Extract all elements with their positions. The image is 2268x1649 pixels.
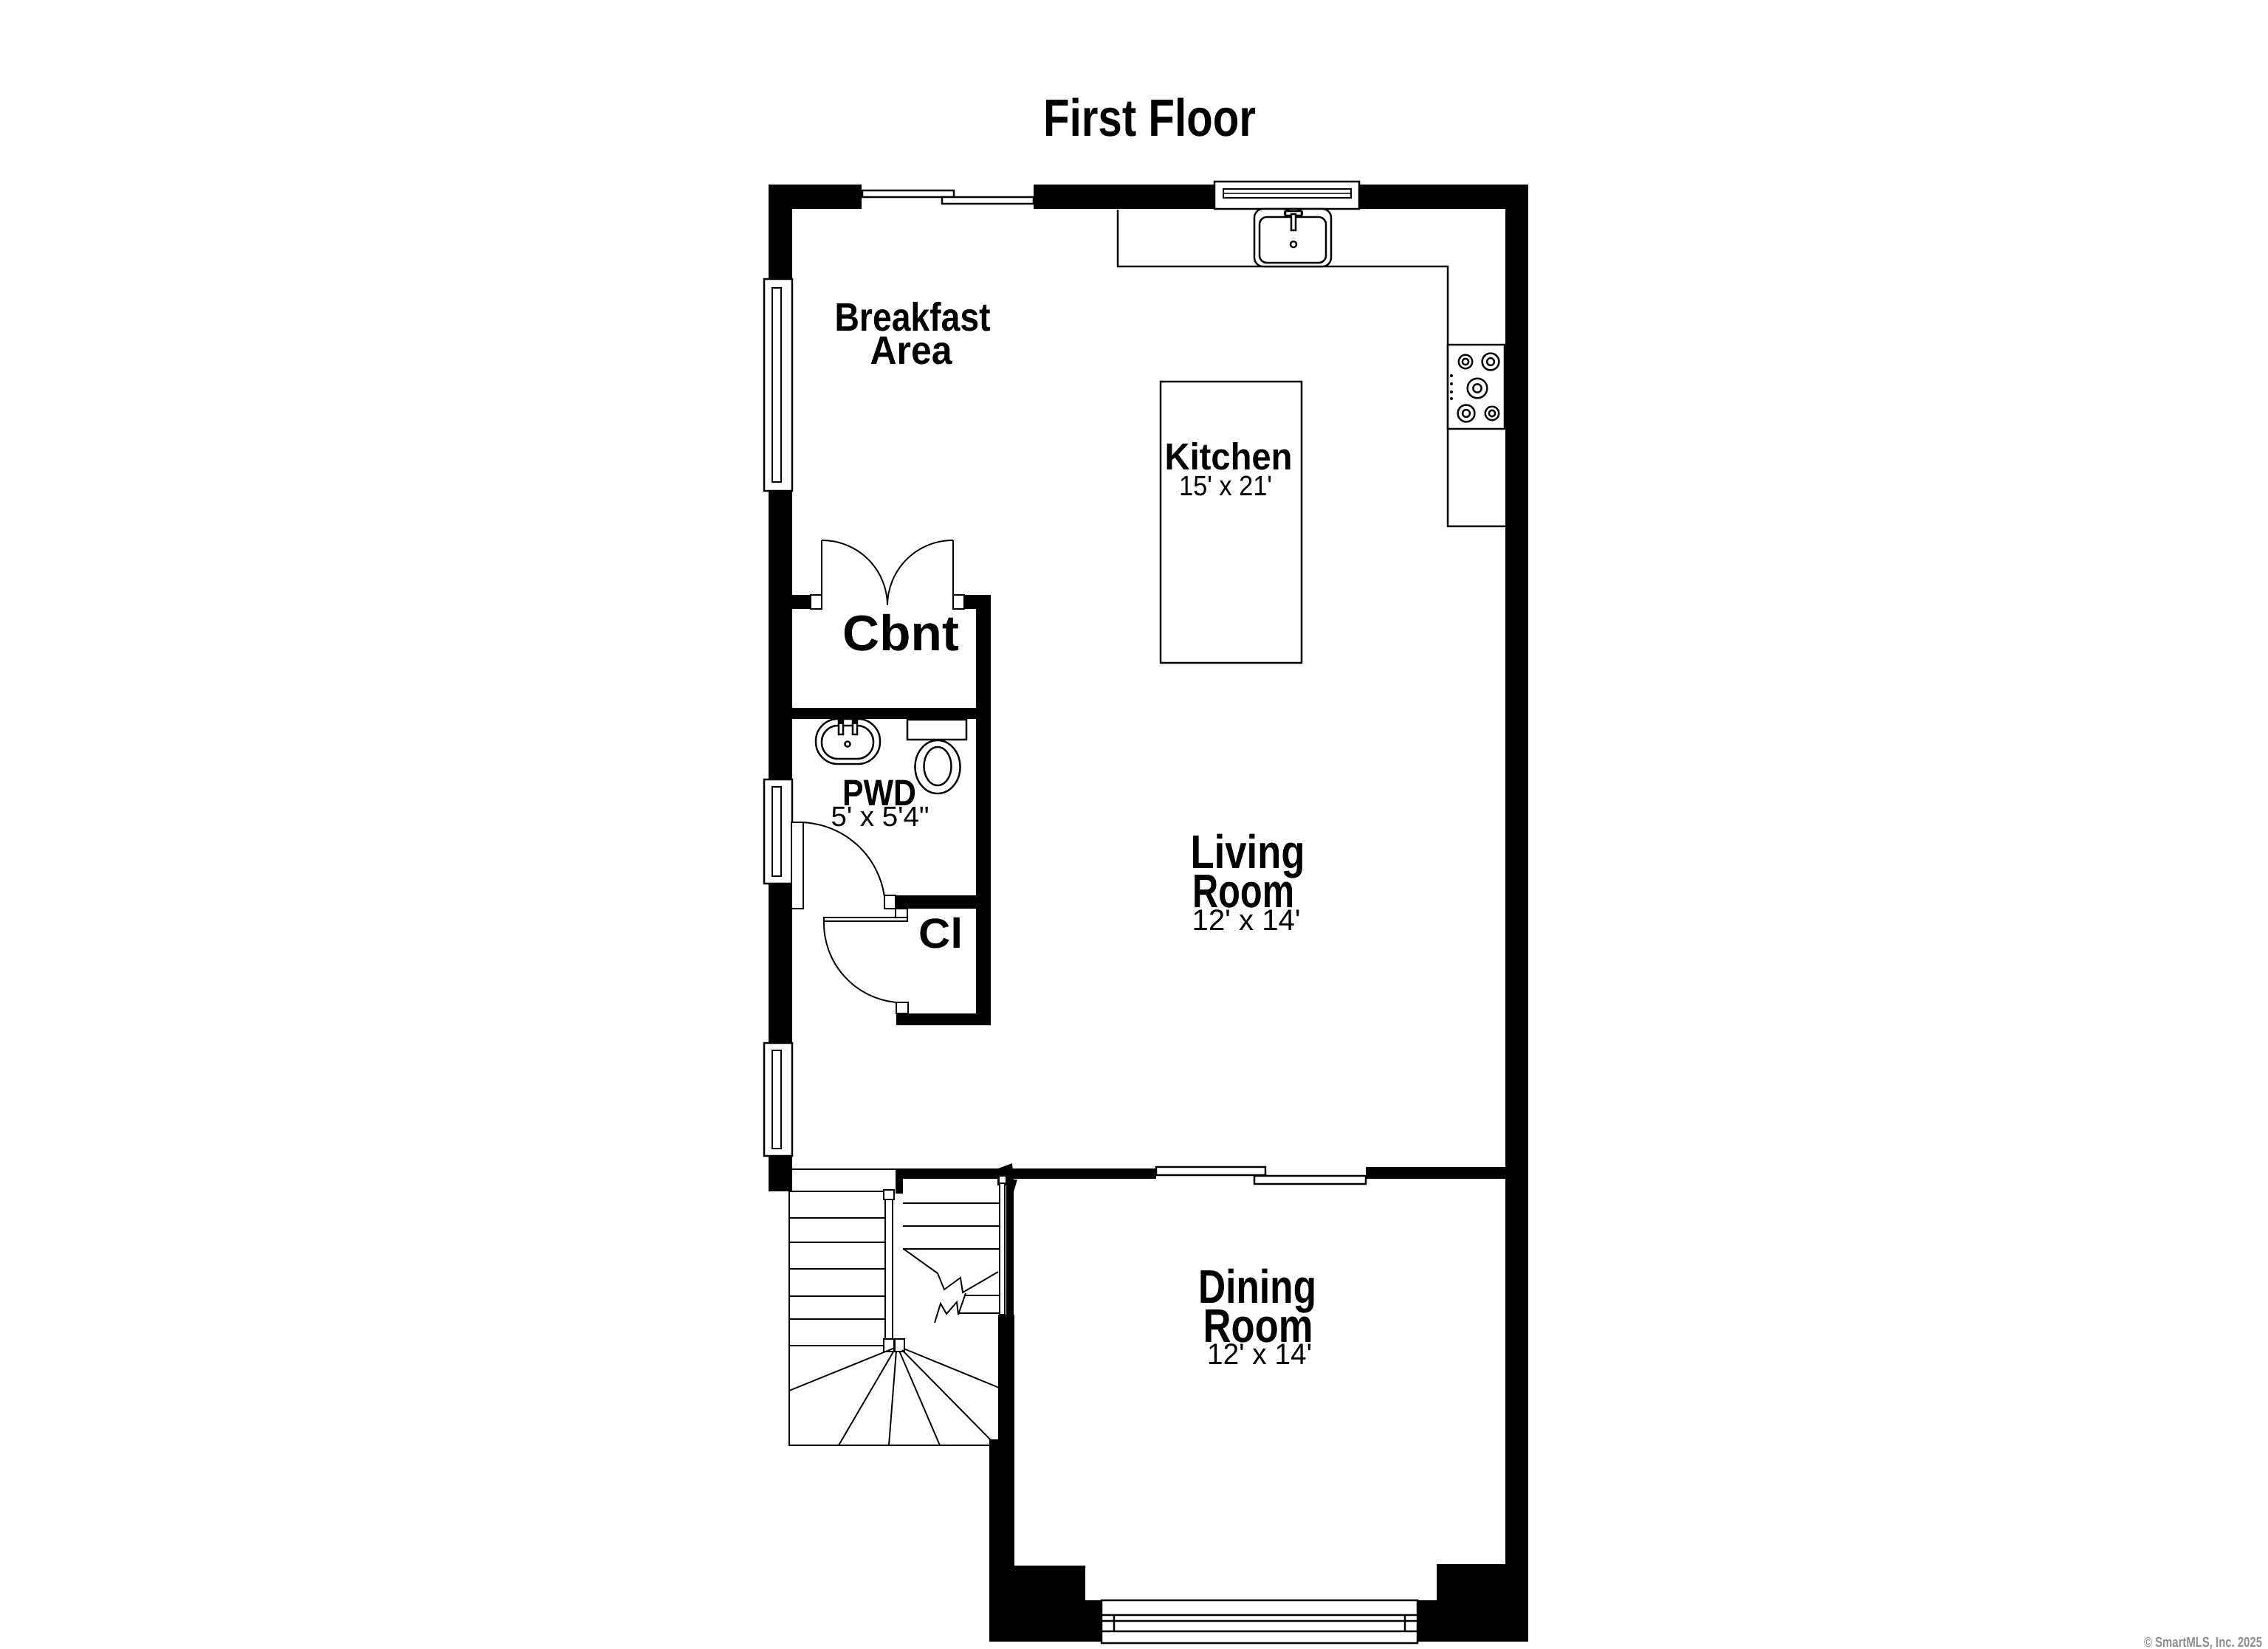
svg-text:Cbnt: Cbnt (842, 605, 959, 661)
svg-text:12' x 14': 12' x 14' (1192, 904, 1301, 937)
svg-text:Cl: Cl (918, 910, 963, 957)
svg-text:First Floor: First Floor (1043, 89, 1256, 148)
svg-text:15' x 21': 15' x 21' (1179, 471, 1272, 502)
svg-text:5' x 5'4": 5' x 5'4" (831, 802, 929, 833)
svg-text:12' x 14': 12' x 14' (1207, 1338, 1312, 1371)
svg-text:Area: Area (870, 328, 953, 373)
svg-text:© SmartMLS, Inc. 2025: © SmartMLS, Inc. 2025 (2144, 1635, 2262, 1649)
